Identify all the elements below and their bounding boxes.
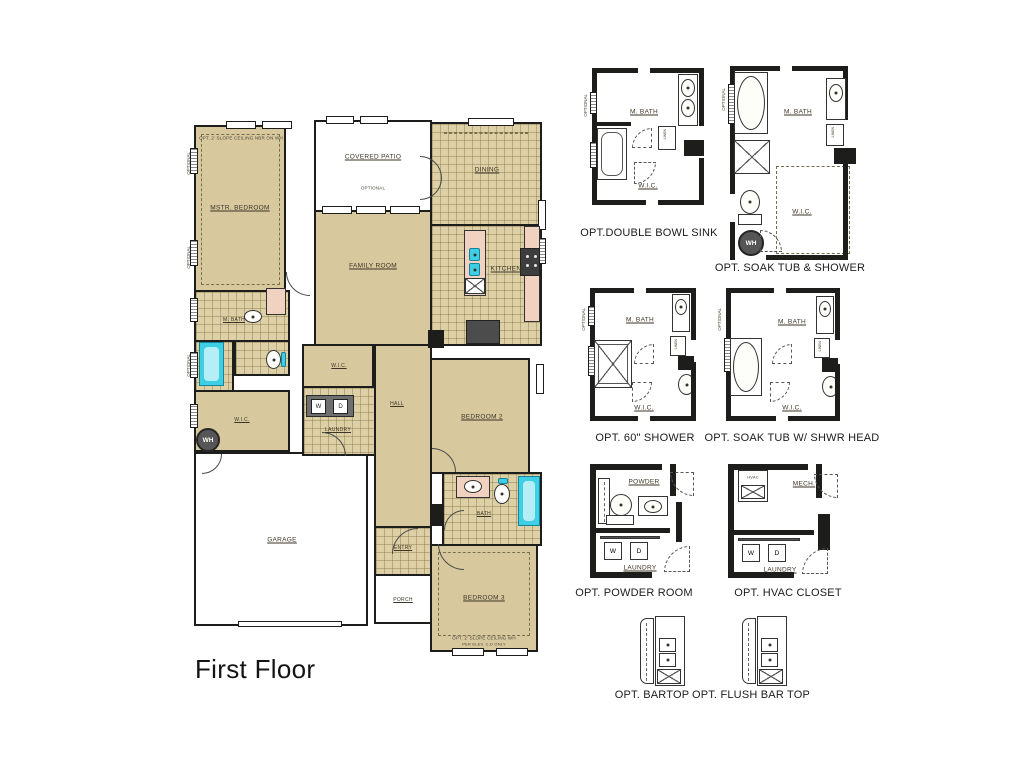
wall: [699, 68, 704, 126]
window-optional: [190, 404, 198, 428]
option-powder-room: POWDER W D LAUNDRY: [584, 458, 710, 584]
wall: [835, 364, 840, 421]
option-caption: OPT. BARTOP: [615, 689, 690, 701]
window-optional: [190, 352, 198, 378]
room-label-hall: HALL: [390, 401, 404, 407]
room-label-garage: GARAGE: [267, 537, 297, 544]
wall: [590, 288, 634, 293]
washer-box: W: [604, 542, 622, 560]
sink-icon: [681, 99, 695, 117]
option-double-bowl-sink: OPTIONAL M. BATH LINEN W.I.C.: [588, 66, 712, 224]
linen-closet: [814, 338, 830, 358]
door-arc: [802, 548, 828, 574]
washer-box: W: [311, 399, 326, 414]
toilet-icon: [740, 190, 760, 214]
option-caption: OPT. FLUSH BAR TOP: [692, 689, 810, 701]
option-caption: OPT. HVAC CLOSET: [734, 587, 842, 599]
room-dining: [430, 122, 542, 226]
wall: [646, 288, 696, 293]
sink-icon: [659, 653, 676, 667]
m-bath-label: M. BATH: [778, 319, 806, 326]
window: [452, 648, 484, 656]
tub-basin-icon: [733, 342, 759, 392]
sink-icon: [675, 299, 687, 315]
tub-basin-icon: [737, 76, 765, 130]
door-arc: [770, 382, 790, 402]
wall: [843, 164, 848, 260]
wall: [834, 148, 856, 164]
window: [322, 206, 352, 214]
powder-label: POWDER: [628, 479, 659, 486]
optional-note: OPTIONAL: [361, 186, 385, 191]
wall: [596, 528, 670, 533]
sink-icon: [681, 79, 695, 97]
stove-icon: [520, 248, 540, 276]
door-arc: [634, 344, 654, 364]
sink-icon: [761, 638, 778, 652]
wall: [432, 504, 442, 526]
option-caption: OPT.DOUBLE BOWL SINK: [580, 227, 717, 239]
mbath-sink-icon: [244, 310, 262, 323]
linen-closet: [826, 124, 844, 146]
room-label-bath2: BATH: [477, 511, 491, 517]
window-optional: [190, 298, 198, 322]
sink-icon: [761, 653, 778, 667]
wall: [658, 200, 704, 205]
room-label-entry: ENTRY: [394, 545, 412, 551]
wall: [590, 464, 662, 470]
wic-label: W.I.C.: [782, 405, 802, 412]
kitchen-sink-icon: [469, 248, 480, 261]
washer-dryer-counter: W D: [306, 395, 354, 417]
toilet-tank-icon: [498, 478, 508, 484]
laundry-label: LAUNDRY: [623, 565, 656, 572]
m-bath-label: M. BATH: [626, 317, 654, 324]
window: [226, 121, 256, 129]
room-label-m-bath: M. BATH: [223, 317, 245, 323]
mech-label: MECH.: [793, 481, 815, 488]
mbath-closet: [266, 288, 286, 315]
optional-note: OPTIONAL: [581, 308, 586, 331]
wall: [597, 122, 631, 126]
wall: [650, 68, 704, 73]
wall: [728, 464, 734, 578]
optional-note: OPTIONAL: [583, 94, 588, 117]
water-heater-icon: WH: [196, 428, 220, 452]
burner-icon: [526, 255, 529, 258]
linen-label: LINEN: [818, 341, 822, 351]
dishwasher-icon: [465, 278, 485, 294]
option-bartop: [640, 616, 688, 688]
kitchen-sink-icon: [469, 263, 480, 276]
optional-note: OPTIONAL: [717, 308, 722, 331]
wall: [590, 572, 652, 578]
room-label-laundry: LAUNDRY: [325, 427, 351, 433]
option-60-shower: OPTIONAL M. BATH LINEN W.I.C.: [586, 286, 708, 428]
elev-note: PER ELEV. C,D ONLY: [462, 642, 506, 647]
wall: [730, 222, 735, 260]
window: [468, 118, 514, 126]
optional-note: OPTIONAL: [721, 88, 726, 111]
bar-counter: [640, 618, 654, 684]
dashed-ceiling-line: [444, 132, 528, 134]
toilet-icon: [266, 350, 281, 369]
washer-dryer-counter: [600, 536, 660, 539]
wall: [428, 330, 444, 348]
bar-counter: [742, 618, 756, 684]
room-label-dining: DINING: [475, 167, 500, 174]
room-label-wic-master: W.I.C.: [234, 417, 249, 423]
room-covered-patio: [314, 120, 432, 212]
wall: [818, 514, 830, 550]
option-caption: OPT. POWDER ROOM: [575, 587, 692, 599]
wall: [788, 416, 836, 421]
linen-label: LINEN: [831, 127, 835, 137]
window: [326, 116, 354, 124]
shower-icon: [594, 340, 632, 388]
main-floor-plan: OPT. 2' SLOPE CEILING NBR ON WH OPT. 2' …: [186, 112, 556, 664]
mbath-tub-icon: [199, 342, 224, 386]
room-label-mstr-bedroom: MSTR. BEDROOM: [210, 205, 270, 212]
wall: [592, 200, 646, 205]
option-soak-tub-shwr-head: OPTIONAL M. BATH LINEN W.I.C.: [722, 286, 862, 428]
option-caption: OPT. SOAK TUB & SHOWER: [715, 262, 865, 274]
fridge-icon: [466, 320, 500, 344]
linen-label: LINEN: [663, 129, 667, 139]
room-label-covered-patio: COVERED PATIO: [345, 154, 401, 161]
toilet-tank-icon: [281, 352, 286, 367]
washer-box: W: [742, 544, 760, 562]
window: [262, 121, 292, 129]
m-bath-label: M. BATH: [784, 109, 812, 116]
dishwasher-icon: [759, 669, 783, 684]
room-label-wic-hall: W.I.C.: [331, 363, 346, 369]
toilet-icon: [494, 484, 510, 504]
wall: [590, 416, 638, 421]
linen-closet: [670, 336, 686, 356]
option-hvac-closet: HVAC MECH. W D LAUNDRY: [722, 458, 858, 584]
room-hall: [374, 344, 432, 528]
door-arc: [664, 546, 690, 572]
toilet-tank-icon: [606, 515, 634, 525]
wall: [792, 66, 848, 71]
wall: [835, 288, 840, 340]
wall: [684, 140, 704, 156]
window: [356, 206, 386, 214]
door-arc: [632, 128, 652, 148]
wic-label: W.I.C.: [634, 405, 654, 412]
window-optional: [590, 92, 597, 114]
room-label-family-room: FAMILY ROOM: [349, 263, 397, 270]
linen-closet: [658, 126, 676, 150]
tub-icon: [597, 128, 627, 180]
room-family-room: [314, 210, 432, 346]
wall: [650, 416, 696, 421]
wall: [691, 362, 696, 421]
option-flush-bartop: [742, 616, 790, 688]
wall: [691, 288, 696, 340]
ceiling-note: OPT. 2' SLOPE CEILING WH: [452, 636, 516, 641]
window-optional: [588, 306, 595, 326]
ceiling-note: OPT. 2' SLOPE CEILING NBR ON WH: [199, 136, 283, 141]
linen-label: LINEN: [674, 339, 678, 349]
shower-icon: [734, 140, 770, 174]
wall: [766, 255, 848, 260]
m-bath-label: M. BATH: [630, 109, 658, 116]
dryer-box: D: [768, 544, 786, 562]
door-arc: [632, 382, 652, 402]
toilet-tank-icon: [738, 214, 762, 225]
window: [496, 648, 528, 656]
wall: [734, 530, 814, 535]
wall: [699, 158, 704, 205]
option-caption: OPT. 60" SHOWER: [595, 432, 694, 444]
bath2-tub-icon: [518, 476, 540, 526]
dryer-box: D: [630, 542, 648, 560]
option-caption: OPT. SOAK TUB W/ SHWR HEAD: [705, 432, 880, 444]
wall: [786, 288, 840, 293]
wall: [730, 66, 780, 71]
wall: [728, 572, 794, 578]
option-soak-tub-shower: OPTIONAL M. BATH LINEN WH W.I.C.: [726, 64, 862, 262]
carpet-edge: [776, 166, 850, 254]
toilet-icon: [610, 494, 632, 516]
wall: [590, 464, 596, 578]
window-optional: [190, 240, 198, 266]
hvac-label: HVAC: [747, 475, 759, 480]
wall: [676, 502, 682, 542]
bath2-sink-icon: [464, 480, 482, 493]
room-label-bedroom3: BEDROOM 3: [463, 595, 505, 602]
door-arc: [772, 344, 792, 364]
door-arc: [634, 162, 656, 184]
wall: [726, 416, 776, 421]
wall: [592, 68, 638, 73]
sink-icon: [644, 500, 662, 513]
room-label-porch: PORCH: [393, 597, 413, 603]
window: [536, 364, 544, 394]
hvac-coil-icon: [741, 485, 765, 499]
window: [390, 206, 420, 214]
page-title: First Floor: [195, 654, 315, 685]
sink-icon: [829, 84, 843, 102]
sink-icon: [819, 301, 831, 317]
washer-dryer-counter: [738, 538, 800, 541]
dryer-box: D: [333, 399, 348, 414]
dishwasher-icon: [657, 669, 681, 684]
sink-icon: [659, 638, 676, 652]
room-label-kitchen: KITCHEN: [491, 266, 522, 273]
wall: [726, 288, 774, 293]
wic-label: W.I.C.: [638, 183, 658, 190]
room-label-bedroom2: BEDROOM 2: [461, 414, 503, 421]
window-optional: [590, 142, 597, 168]
window: [360, 116, 388, 124]
window-optional: [190, 148, 198, 174]
garage-door: [238, 621, 342, 627]
